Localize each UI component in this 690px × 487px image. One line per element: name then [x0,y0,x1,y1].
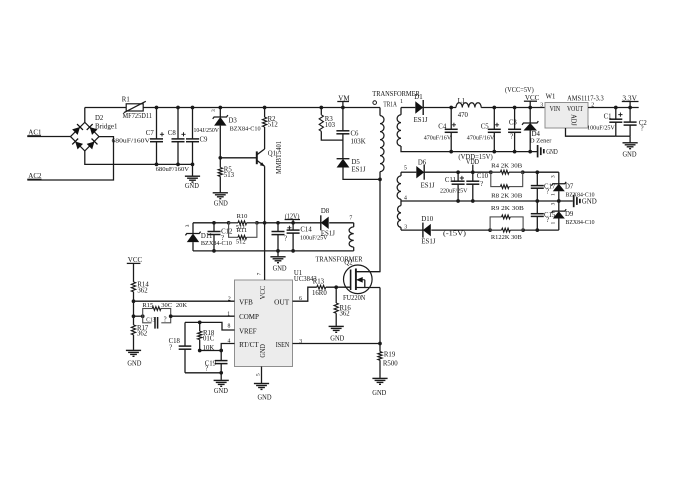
svg-text:VCC: VCC [260,285,267,299]
svg-text:TRANSFORMER: TRANSFORMER [372,91,420,98]
svg-text:R11: R11 [237,227,248,234]
svg-text:GND: GND [258,394,272,402]
svg-text:ADJ: ADJ [569,114,576,126]
svg-text:D2: D2 [95,115,104,122]
svg-text:1: 1 [400,99,403,105]
svg-text:C14: C14 [300,227,312,234]
svg-text:GND: GND [260,344,267,358]
svg-text:BZX84-C10: BZX84-C10 [566,192,595,199]
svg-text:R10: R10 [237,213,248,220]
svg-text:W1: W1 [546,94,556,101]
svg-text:D9: D9 [565,211,574,218]
svg-text:?: ? [641,126,644,133]
svg-text:Bridge1: Bridge1 [95,124,118,131]
svg-text:4: 4 [404,195,407,201]
svg-text:R19: R19 [384,352,396,359]
svg-text:TR1A: TR1A [383,101,397,108]
svg-text:30C: 30C [161,302,172,309]
svg-text:(-15V): (-15V) [443,231,466,238]
svg-text:ES1J: ES1J [421,238,435,245]
svg-text:470uF/16V: 470uF/16V [424,134,452,141]
svg-text:D Zener: D Zener [530,137,552,144]
svg-text:680uF/160V: 680uF/160V [112,137,151,144]
svg-text:GND: GND [546,149,558,156]
svg-text:C10: C10 [477,173,489,180]
svg-text:ISEN: ISEN [276,342,290,349]
svg-text:?: ? [480,181,483,188]
svg-text:R15: R15 [142,302,153,309]
svg-text:3: 3 [551,202,557,205]
svg-text:R1: R1 [122,97,130,104]
svg-text:RT/CT: RT/CT [239,342,259,349]
svg-text:100uF/25V: 100uF/25V [587,125,615,132]
svg-text:10K: 10K [203,345,215,352]
svg-text:GND: GND [127,360,141,368]
svg-text:104J/250V: 104J/250V [194,127,220,134]
svg-text:GND: GND [273,265,287,273]
svg-text:R13: R13 [313,279,325,286]
svg-text:?: ? [546,217,549,224]
svg-text:GND: GND [185,182,199,190]
svg-text:512: 512 [236,239,246,246]
svg-text:C7: C7 [146,130,155,137]
svg-text:AC2: AC2 [28,172,42,180]
svg-text:D10: D10 [421,216,433,223]
svg-text:L1: L1 [458,98,466,105]
svg-text:C1: C1 [604,114,612,121]
svg-text:ES1J: ES1J [352,167,366,174]
svg-text:C3: C3 [509,119,518,126]
svg-text:512: 512 [268,122,279,129]
svg-text:362: 362 [340,311,351,318]
svg-text:GND: GND [214,199,228,207]
svg-text:?: ? [169,344,172,351]
svg-text:C6: C6 [351,130,360,137]
svg-text:470: 470 [458,112,469,119]
svg-text:TRANSFORMER: TRANSFORMER [316,256,363,263]
svg-text:ES1J: ES1J [414,117,428,124]
svg-text:16R0: 16R0 [312,290,327,297]
svg-text:R122K 30B: R122K 30B [491,234,522,241]
svg-text:3: 3 [551,175,557,178]
svg-text:R4 2K 30B: R4 2K 30B [491,162,522,169]
svg-text:ES1J: ES1J [421,183,435,190]
svg-text:AMS1117-3.3: AMS1117-3.3 [567,96,604,103]
svg-text:20K: 20K [176,302,188,309]
svg-text:3: 3 [211,109,217,112]
svg-text:D3: D3 [229,117,238,124]
svg-text:R9 2K 30B: R9 2K 30B [491,205,524,212]
svg-text:BZX84-C10: BZX84-C10 [201,240,232,247]
svg-text:VOUT: VOUT [567,106,584,113]
svg-text:C11: C11 [445,177,456,184]
svg-text:VFB: VFB [239,299,253,306]
svg-text:D1: D1 [414,94,422,101]
svg-text:680uF/160V: 680uF/160V [156,166,190,173]
svg-text:220uF/25V: 220uF/25V [440,187,468,194]
svg-text:3: 3 [185,224,191,227]
svg-text:GND: GND [582,199,597,206]
svg-text:?: ? [546,189,549,196]
svg-text:1: 1 [551,193,557,196]
svg-text:ES1J: ES1J [321,231,335,238]
svg-text:BZX84-C10: BZX84-C10 [566,219,595,226]
svg-text:MF725D11: MF725D11 [123,113,153,120]
svg-text:GND: GND [214,387,228,395]
svg-text:GND: GND [372,389,386,397]
svg-text:?: ? [164,317,167,324]
svg-text:D6: D6 [418,159,427,166]
svg-text:R500: R500 [383,361,398,368]
svg-text:513: 513 [224,172,235,179]
svg-text:103K: 103K [351,138,366,145]
svg-text:D5: D5 [352,159,361,166]
svg-text:C13: C13 [146,317,155,324]
svg-text:VREF: VREF [239,328,257,335]
svg-text:C9: C9 [200,136,209,143]
svg-text:C8: C8 [168,130,177,137]
svg-text:?: ? [221,235,224,242]
svg-text:362: 362 [137,330,148,337]
svg-text:?: ? [510,134,513,141]
svg-text:8: 8 [228,323,231,329]
svg-text:5: 5 [256,373,262,376]
svg-text:470uF/16V: 470uF/16V [467,134,495,141]
svg-text:D8: D8 [321,208,330,215]
svg-text:362: 362 [137,288,148,295]
svg-text:MMBT5401: MMBT5401 [276,141,283,174]
svg-text:COMP: COMP [239,314,259,321]
svg-text:D7: D7 [565,184,574,191]
svg-text:R8 2K 30B: R8 2K 30B [491,192,522,199]
svg-text:5: 5 [404,166,407,172]
svg-text:?: ? [205,365,208,372]
svg-text:3: 3 [540,102,543,108]
svg-text:?: ? [284,235,287,242]
svg-text:AC1: AC1 [28,128,42,136]
svg-text:Q1: Q1 [268,151,276,158]
svg-text:OUT: OUT [274,299,290,306]
svg-text:103: 103 [325,122,336,129]
svg-text:7: 7 [349,216,352,222]
svg-text:VIN: VIN [550,106,561,113]
svg-text:01C: 01C [203,336,215,343]
svg-text:BZX84-C10: BZX84-C10 [230,126,261,133]
svg-text:C4: C4 [438,123,447,130]
svg-text:GND: GND [330,335,344,343]
svg-text:GND: GND [623,151,637,159]
svg-text:1: 1 [551,221,557,224]
svg-text:7: 7 [257,272,263,275]
svg-text:C5: C5 [481,123,490,130]
svg-text:FU220N: FU220N [343,295,365,302]
